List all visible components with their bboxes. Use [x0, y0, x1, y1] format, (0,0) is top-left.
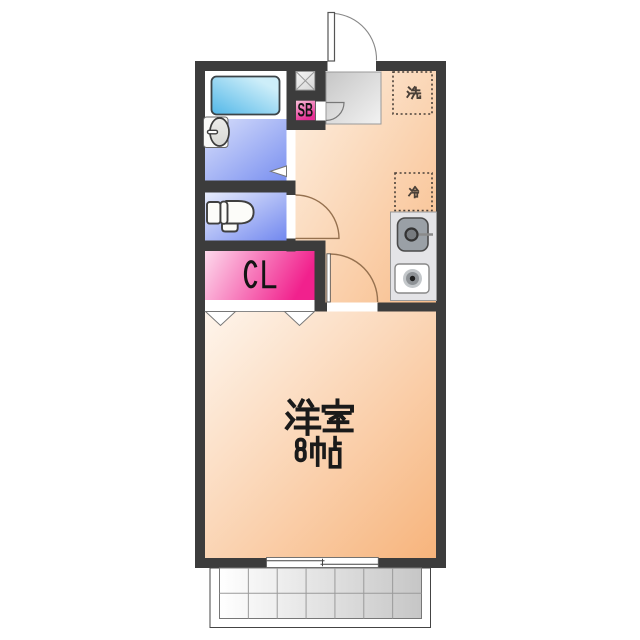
svg-text:SB: SB: [298, 100, 314, 121]
